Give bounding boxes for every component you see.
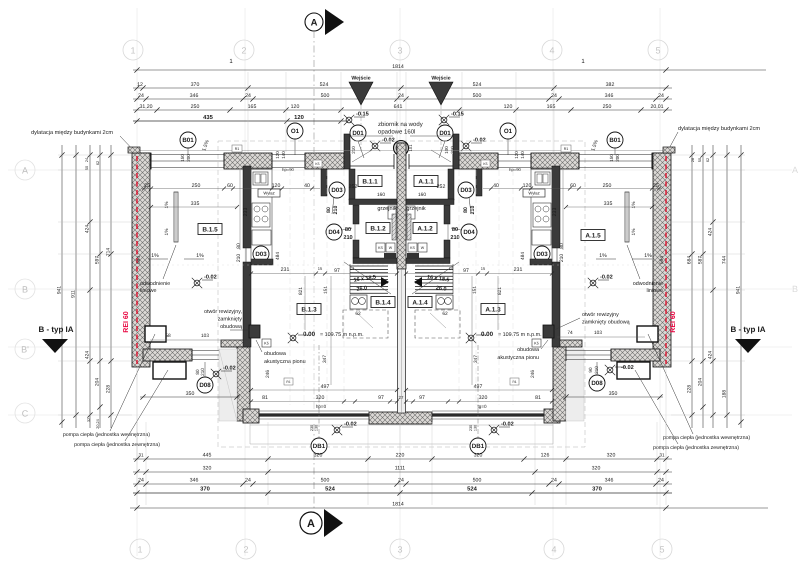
svg-text:320: 320	[203, 466, 212, 472]
svg-text:346: 346	[605, 478, 614, 484]
svg-text:497: 497	[321, 384, 330, 390]
svg-text:231: 231	[514, 267, 523, 273]
svg-text:A: A	[307, 518, 315, 530]
svg-text:otwór rewizyjny: otwór rewizyjny	[582, 312, 619, 318]
svg-text:1%: 1%	[631, 201, 637, 209]
svg-text:220: 220	[396, 453, 405, 459]
svg-text:20,24: 20,24	[96, 419, 100, 429]
svg-text:-0.02: -0.02	[501, 422, 514, 428]
svg-text:346: 346	[605, 93, 614, 99]
svg-text:pompa ciepła (jednostka zewnęt: pompa ciepła (jednostka zewnętrzna)	[74, 442, 160, 448]
svg-text:D04: D04	[463, 229, 475, 236]
svg-text:424: 424	[85, 225, 91, 233]
svg-text:484: 484	[275, 252, 281, 260]
svg-text:228: 228	[106, 385, 112, 393]
svg-text:320: 320	[607, 453, 616, 459]
svg-text:80: 80	[559, 243, 565, 249]
svg-text:24: 24	[398, 478, 404, 484]
svg-text:210: 210	[200, 368, 205, 376]
svg-text:424: 424	[708, 228, 714, 236]
svg-text:97: 97	[419, 395, 425, 401]
svg-text:100: 100	[444, 146, 449, 154]
svg-text:424: 424	[85, 351, 91, 359]
svg-text:24: 24	[658, 93, 664, 99]
svg-text:REI 60: REI 60	[670, 311, 677, 333]
svg-text:DB1: DB1	[313, 443, 326, 450]
svg-text:1%: 1%	[599, 253, 607, 259]
svg-text:346: 346	[190, 93, 199, 99]
svg-text:200: 200	[186, 154, 191, 162]
svg-text:3: 3	[397, 46, 402, 56]
svg-text:497: 497	[474, 384, 483, 390]
svg-text:233: 233	[243, 208, 249, 217]
svg-text:335: 335	[191, 201, 200, 207]
svg-text:D03: D03	[331, 187, 343, 194]
svg-text:14: 14	[350, 266, 355, 271]
svg-text:103: 103	[201, 333, 209, 339]
svg-text:90: 90	[588, 367, 593, 373]
svg-text:KS: KS	[378, 246, 383, 250]
svg-text:101: 101	[408, 144, 413, 152]
svg-text:60: 60	[570, 183, 576, 189]
svg-text:524: 524	[467, 485, 477, 492]
svg-text:350: 350	[609, 391, 618, 397]
svg-text:1111: 1111	[395, 466, 405, 472]
svg-text:252: 252	[437, 184, 446, 190]
svg-text:228: 228	[687, 385, 693, 393]
svg-text:1814: 1814	[392, 501, 404, 507]
svg-text:97: 97	[378, 395, 384, 401]
svg-text:dylatacja między budynkami 2cm: dylatacja między budynkami 2cm	[678, 125, 760, 132]
svg-text:435: 435	[203, 114, 213, 121]
svg-text:210: 210	[594, 366, 599, 374]
svg-text:204: 204	[95, 378, 101, 386]
svg-text:1%: 1%	[631, 228, 637, 236]
svg-text:62: 62	[355, 311, 361, 317]
svg-text:911: 911	[71, 290, 77, 298]
svg-text:A.1.5: A.1.5	[585, 233, 601, 240]
svg-text:714: 714	[106, 248, 112, 256]
svg-text:58: 58	[165, 333, 171, 339]
svg-text:B - typ IA: B - typ IA	[38, 325, 73, 334]
svg-text:250: 250	[603, 104, 612, 110]
svg-text:Wyłaz: Wyłaz	[528, 191, 539, 196]
svg-text:188: 188	[722, 390, 728, 398]
svg-text:50: 50	[85, 166, 89, 170]
svg-text:A.1.3: A.1.3	[485, 307, 501, 314]
svg-text:594: 594	[136, 256, 142, 264]
svg-text:97: 97	[463, 268, 469, 274]
svg-text:liniowe: liniowe	[647, 288, 663, 294]
svg-text:821: 821	[298, 287, 304, 295]
svg-text:14: 14	[449, 266, 454, 271]
svg-text:D04: D04	[328, 229, 340, 236]
svg-text:-0.02: -0.02	[621, 365, 634, 371]
svg-text:80: 80	[452, 227, 458, 233]
svg-text:0.00: 0.00	[481, 331, 494, 338]
svg-text:500: 500	[473, 93, 482, 99]
svg-text:370: 370	[592, 485, 602, 492]
svg-text:445: 445	[203, 453, 212, 459]
svg-text:D03: D03	[255, 251, 267, 258]
svg-text:320: 320	[316, 395, 325, 401]
svg-text:80: 80	[345, 227, 351, 233]
svg-text:62: 62	[96, 161, 100, 165]
svg-text:31: 31	[138, 453, 144, 458]
svg-text:K5: K5	[483, 162, 487, 166]
svg-text:2: 2	[243, 545, 248, 555]
svg-text:424: 424	[708, 351, 714, 359]
svg-text:60: 60	[227, 183, 233, 189]
svg-text:641: 641	[394, 104, 403, 110]
svg-text:230: 230	[469, 425, 473, 431]
svg-text:230: 230	[310, 425, 314, 431]
svg-text:500: 500	[473, 478, 482, 484]
svg-text:4: 4	[549, 46, 554, 56]
svg-text:1814: 1814	[392, 64, 404, 70]
svg-text:-0.02: -0.02	[382, 138, 395, 144]
svg-text:524: 524	[325, 485, 335, 492]
svg-text:160: 160	[377, 192, 385, 198]
svg-text:120: 120	[272, 183, 281, 189]
svg-text:31: 31	[659, 453, 665, 458]
svg-text:24: 24	[398, 93, 404, 99]
svg-text:KS: KS	[410, 246, 415, 250]
svg-text:204: 204	[698, 378, 704, 386]
svg-text:D08: D08	[591, 380, 603, 387]
svg-text:Wejście: Wejście	[351, 76, 370, 82]
svg-text:120: 120	[291, 104, 300, 110]
svg-text:K5: K5	[264, 342, 269, 346]
svg-text:B.1.3: B.1.3	[301, 307, 317, 314]
svg-text:40: 40	[493, 183, 499, 189]
svg-text:D03: D03	[460, 187, 472, 194]
svg-text:320: 320	[314, 453, 323, 459]
svg-text:B.1.5: B.1.5	[202, 227, 218, 234]
svg-text:B - typ IA: B - typ IA	[730, 325, 765, 334]
svg-text:A: A	[22, 165, 28, 175]
svg-text:32: 32	[87, 418, 91, 422]
svg-text:370: 370	[200, 485, 210, 492]
svg-text:120: 120	[294, 114, 304, 121]
svg-text:320: 320	[479, 395, 488, 401]
svg-text:744: 744	[722, 256, 728, 264]
svg-text:C: C	[22, 408, 29, 418]
svg-text:1%: 1%	[644, 253, 652, 259]
svg-text:587: 587	[698, 256, 704, 264]
svg-text:210: 210	[343, 235, 352, 241]
svg-text:liniowe: liniowe	[140, 288, 156, 294]
svg-text:120: 120	[504, 104, 513, 110]
svg-text:grzejnik: grzejnik	[406, 205, 425, 212]
svg-text:5: 5	[659, 545, 664, 555]
svg-text:5: 5	[655, 46, 660, 56]
svg-text:350: 350	[186, 391, 195, 397]
svg-text:597: 597	[95, 256, 101, 264]
svg-text:25: 25	[653, 183, 659, 189]
svg-text:24: 24	[85, 158, 89, 162]
svg-text:obudowa: obudowa	[264, 351, 286, 357]
svg-text:150: 150	[609, 154, 614, 162]
svg-text:335: 335	[604, 201, 613, 207]
svg-text:684: 684	[687, 256, 693, 264]
svg-text:524: 524	[473, 82, 482, 88]
svg-text:= 109.75 m n.p.m.: = 109.75 m n.p.m.	[320, 332, 364, 338]
svg-text:W: W	[389, 246, 393, 250]
svg-text:210: 210	[333, 206, 339, 215]
svg-text:grzejnik: grzejnik	[377, 205, 396, 212]
svg-text:25: 25	[144, 183, 150, 189]
svg-text:24: 24	[658, 478, 664, 484]
svg-text:80: 80	[236, 243, 242, 249]
svg-text:obudowa: obudowa	[517, 347, 539, 353]
svg-text:1%: 1%	[151, 253, 159, 259]
svg-text:odwodnienie: odwodnienie	[633, 281, 663, 287]
svg-text:320: 320	[592, 466, 601, 472]
svg-text:103: 103	[594, 330, 602, 336]
svg-text:B.1.4: B.1.4	[375, 300, 391, 307]
svg-text:2: 2	[241, 46, 246, 56]
svg-text:A.1.1: A.1.1	[418, 179, 434, 186]
svg-text:1: 1	[137, 545, 142, 555]
svg-text:252: 252	[349, 184, 358, 190]
svg-text:382: 382	[606, 82, 615, 88]
svg-text:hp=0: hp=0	[316, 404, 327, 409]
svg-text:62: 62	[706, 158, 710, 162]
svg-text:W: W	[421, 246, 425, 250]
svg-text:-0.02: -0.02	[223, 366, 236, 372]
svg-text:D08: D08	[199, 382, 211, 389]
svg-text:akustyczna pionu: akustyczna pionu	[264, 359, 306, 365]
svg-text:-0.15: -0.15	[451, 112, 464, 118]
svg-text:28: 28	[691, 158, 695, 162]
svg-text:524: 524	[320, 82, 329, 88]
svg-text:210: 210	[559, 254, 565, 263]
svg-text:40: 40	[304, 183, 310, 189]
svg-text:-0.02: -0.02	[600, 275, 613, 281]
svg-text:= 109.75 m n.p.m.: = 109.75 m n.p.m.	[498, 332, 542, 338]
svg-text:A.1.2: A.1.2	[417, 226, 433, 233]
svg-text:otwór rewizyjny,: otwór rewizyjny,	[204, 309, 242, 315]
svg-text:500: 500	[321, 93, 330, 99]
svg-text:165: 165	[248, 104, 257, 110]
svg-text:REI 60: REI 60	[123, 311, 130, 333]
svg-text:24: 24	[551, 478, 557, 484]
svg-text:151: 151	[323, 286, 329, 294]
svg-text:200: 200	[615, 154, 620, 162]
svg-text:hp=90: hp=90	[282, 167, 294, 172]
svg-text:24: 24	[138, 478, 144, 484]
svg-text:Wejście: Wejście	[431, 76, 450, 82]
svg-text:246: 246	[265, 370, 271, 378]
svg-text:233: 233	[552, 208, 558, 217]
svg-text:obudową: obudową	[220, 324, 242, 330]
svg-text:1%: 1%	[164, 228, 170, 236]
svg-text:250: 250	[191, 104, 200, 110]
svg-text:B01: B01	[609, 137, 621, 144]
svg-text:-0.15: -0.15	[356, 112, 369, 118]
svg-text:1: 1	[130, 46, 135, 56]
svg-text:R1: R1	[235, 147, 240, 151]
svg-text:DB1: DB1	[472, 443, 485, 450]
svg-text:-0.02: -0.02	[204, 275, 217, 281]
svg-text:tg=0: tg=0	[477, 404, 487, 409]
svg-text:opadowe 160l: opadowe 160l	[378, 129, 415, 136]
svg-text:1%: 1%	[196, 253, 204, 259]
svg-text:250: 250	[192, 183, 201, 189]
svg-text:210: 210	[351, 146, 356, 154]
svg-text:24: 24	[138, 93, 144, 99]
svg-text:50: 50	[698, 158, 702, 162]
svg-text:24: 24	[245, 478, 251, 484]
svg-text:odwodnienie: odwodnienie	[140, 281, 170, 287]
svg-text:210: 210	[470, 206, 476, 215]
svg-text:250: 250	[603, 183, 612, 189]
svg-text:370: 370	[191, 82, 200, 88]
svg-text:1%: 1%	[164, 201, 170, 209]
svg-text:O1: O1	[504, 128, 513, 135]
svg-text:97: 97	[334, 268, 340, 274]
svg-text:81: 81	[535, 395, 541, 401]
svg-text:210: 210	[236, 254, 242, 263]
svg-text:dylatacja między budynkami 2cm: dylatacja między budynkami 2cm	[31, 129, 113, 136]
svg-text:-0.02: -0.02	[473, 138, 486, 144]
svg-text:B: B	[22, 284, 28, 294]
svg-text:594: 594	[659, 256, 665, 264]
svg-text:246: 246	[530, 370, 536, 378]
svg-text:Wyłaz: Wyłaz	[263, 191, 274, 196]
svg-text:15: 15	[481, 266, 486, 271]
svg-text:B.1.1: B.1.1	[362, 179, 378, 186]
svg-text:O1: O1	[291, 128, 300, 135]
svg-text:15: 15	[318, 266, 323, 271]
svg-text:A: A	[792, 165, 798, 175]
svg-text:81: 81	[262, 395, 268, 401]
svg-text:A.1.4: A.1.4	[412, 300, 428, 307]
svg-text:210: 210	[450, 235, 459, 241]
svg-text:4: 4	[551, 545, 556, 555]
svg-text:27: 27	[399, 395, 404, 400]
svg-text:62: 62	[442, 311, 448, 317]
svg-text:hp=90: hp=90	[509, 167, 521, 172]
svg-text:B.1.2: B.1.2	[370, 226, 386, 233]
svg-text:150: 150	[180, 154, 185, 162]
svg-text:3: 3	[397, 545, 402, 555]
svg-text:80: 80	[463, 207, 469, 213]
svg-text:B': B'	[21, 344, 29, 354]
svg-text:0.00: 0.00	[303, 331, 316, 338]
svg-text:31,20: 31,20	[140, 104, 153, 110]
svg-text:126: 126	[541, 453, 550, 459]
svg-text:B: B	[792, 284, 798, 294]
svg-text:74: 74	[567, 330, 573, 336]
svg-text:500: 500	[321, 478, 330, 484]
svg-text:B01: B01	[182, 137, 194, 144]
svg-text:D03: D03	[536, 251, 548, 258]
svg-text:zamknięty: zamknięty	[218, 317, 243, 323]
svg-text:12: 12	[137, 82, 143, 88]
svg-text:A: A	[311, 18, 318, 29]
svg-text:120: 120	[523, 183, 532, 189]
svg-text:K5: K5	[315, 162, 319, 166]
svg-text:20,01: 20,01	[651, 104, 664, 110]
svg-text:130: 130	[474, 425, 478, 431]
svg-text:320: 320	[474, 453, 483, 459]
svg-text:160: 160	[418, 192, 426, 198]
svg-text:zamknięty obudową: zamknięty obudową	[582, 320, 630, 326]
svg-text:R1: R1	[564, 147, 569, 151]
svg-text:K5: K5	[534, 342, 539, 346]
svg-text:484: 484	[520, 252, 526, 260]
svg-text:pompa ciepła (jednostka wewnęt: pompa ciepła (jednostka wewnętrzna)	[663, 435, 750, 441]
svg-text:-0.02: -0.02	[344, 422, 357, 428]
svg-text:151: 151	[472, 286, 478, 294]
svg-text:346: 346	[190, 478, 199, 484]
svg-text:zbiornik na wody: zbiornik na wody	[378, 121, 423, 128]
svg-text:130: 130	[315, 425, 319, 431]
svg-text:231: 231	[281, 267, 290, 273]
svg-text:akustyczna pionu: akustyczna pionu	[497, 355, 539, 361]
